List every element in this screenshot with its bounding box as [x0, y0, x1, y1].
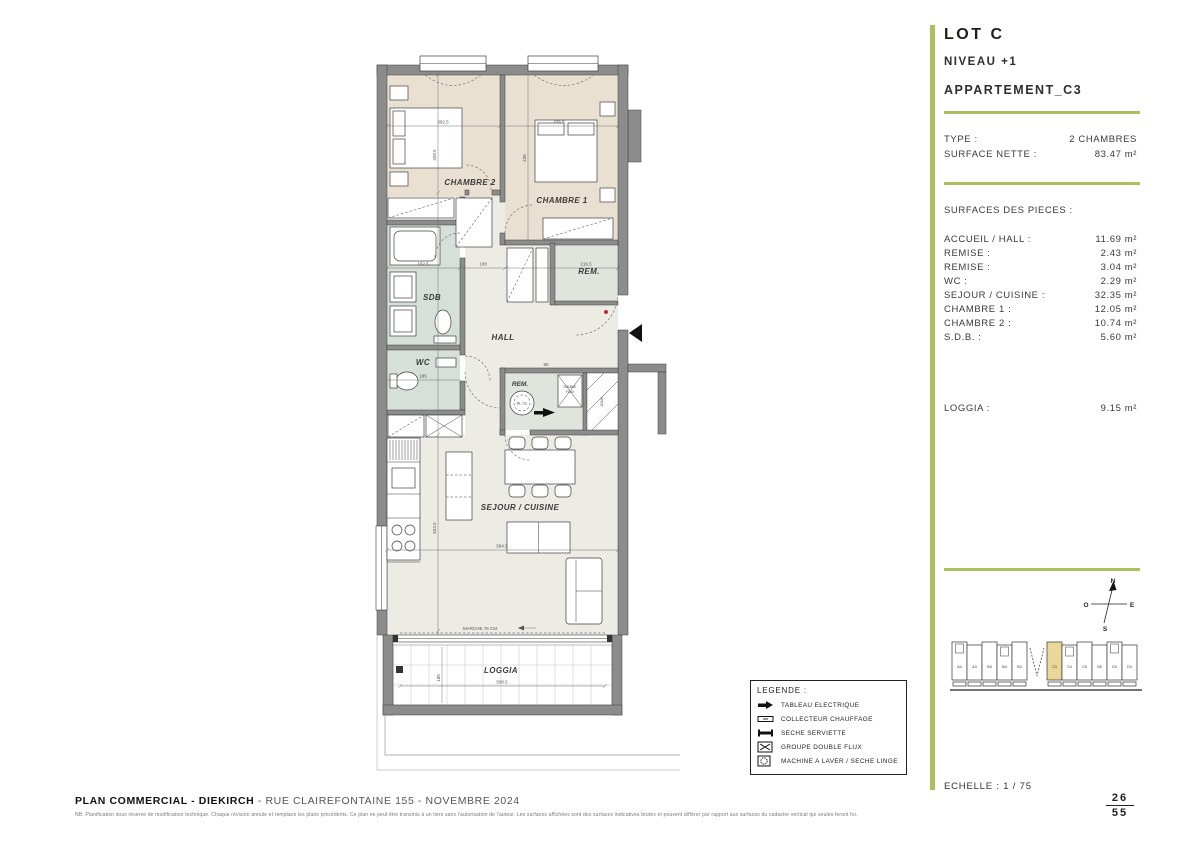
svg-text:216.5: 216.5 [580, 262, 592, 267]
plan-sheet: ML / SL DOUBLE FLUX 40/126 [0, 0, 1191, 842]
footer-title-rest: - RUE CLAIREFONTAINE 155 - NOVEMBRE 2024 [254, 795, 519, 807]
svg-text:D5: D5 [1097, 665, 1102, 669]
floorplan-drawing: ML / SL DOUBLE FLUX 40/126 [350, 50, 750, 790]
svg-text:C5: C5 [1082, 665, 1087, 669]
label-wc: WC [416, 358, 430, 367]
building-position-diagram: A4 A3 B5 B4 B3 C3 C4 C5 D5 D4 D3 [950, 628, 1142, 700]
level-title: NIVEAU +1 [944, 56, 1017, 68]
type-value: 2 CHAMBRES [1069, 134, 1137, 145]
surface-label: SURFACE NETTE : [944, 149, 1037, 160]
divider [944, 182, 1140, 185]
legend-item: TABLEAU ELECTRIQUE [757, 698, 900, 712]
surface-row: SURFACE NETTE : 83.47 m² [944, 149, 1137, 160]
legend-item: SECHE SERVIETTE [757, 726, 900, 740]
svg-text:D4: D4 [1112, 665, 1117, 669]
svg-text:553.5: 553.5 [432, 522, 437, 534]
footer-title-bold: PLAN COMMERCIAL - DIEKIRCH [75, 795, 254, 807]
svg-text:302.5: 302.5 [437, 120, 449, 125]
collecteur-chauffage-icon [757, 714, 781, 724]
svg-text:584.5: 584.5 [496, 544, 508, 549]
room-row: S.D.B. :5.60 m² [944, 332, 1137, 343]
loggia-row: LOGGIA : 9.15 m² [944, 403, 1137, 414]
room-row: REMISE :2.43 m² [944, 248, 1137, 259]
pieces-header: SURFACES DES PIECES : [944, 205, 1073, 216]
room-row: WC :2.29 m² [944, 276, 1137, 287]
shaft-label: 40/126 [600, 397, 604, 407]
machine-a-laver-icon [757, 755, 781, 767]
hall-closets [507, 248, 548, 302]
svg-text:B4: B4 [1002, 665, 1006, 669]
scale-label: ECHELLE : 1 / 75 [944, 781, 1032, 792]
room-row: SEJOUR / CUISINE :32.35 m² [944, 290, 1137, 301]
entrance-dot [604, 310, 608, 314]
highlighted-unit [1047, 642, 1062, 680]
svg-text:328.5: 328.5 [432, 149, 437, 161]
legend-item: MACHINE A LAVER / SECHE LINGE [757, 754, 900, 768]
entrance-marker [1030, 648, 1044, 676]
compass-o: O [1083, 602, 1088, 609]
room-row: ACCUEIL / HALL :11.69 m² [944, 234, 1137, 245]
svg-text:D3: D3 [1127, 665, 1132, 669]
legend-box: LEGENDE : TABLEAU ELECTRIQUE COLLECTEUR … [750, 680, 907, 775]
accent-bar [930, 25, 935, 790]
lot-title: LOT C [944, 26, 1005, 44]
compass-e: E [1130, 602, 1135, 609]
label-sejour: SEJOUR / CUISINE [481, 503, 560, 512]
apartment-title: APPARTEMENT_C3 [944, 83, 1082, 97]
double-flux-label: DOUBLE [563, 385, 576, 389]
label-loggia: LOGGIA [484, 666, 518, 675]
label-rem1: REM. [578, 267, 600, 276]
seche-serviette-icon [757, 728, 781, 738]
room-row: CHAMBRE 1 :12.05 m² [944, 304, 1137, 315]
surface-value: 83.47 m² [1095, 149, 1137, 160]
divider [944, 111, 1140, 114]
footer-title: PLAN COMMERCIAL - DIEKIRCH - RUE CLAIREF… [75, 795, 520, 807]
compass-n: N [1111, 578, 1116, 585]
label-chambre2: CHAMBRE 2 [444, 178, 495, 187]
svg-text:276.5: 276.5 [553, 120, 565, 125]
footer-disclaimer: NB: Planification sous réserve de modifi… [75, 812, 1145, 818]
tableau-electrique-icon [757, 700, 781, 710]
svg-text:508.5: 508.5 [496, 680, 508, 685]
type-label: TYPE : [944, 134, 978, 145]
label-hall: HALL [492, 333, 515, 342]
svg-text:436: 436 [522, 154, 527, 162]
groupe-double-flux-icon [757, 741, 781, 753]
label-chambre1: CHAMBRE 1 [536, 196, 587, 205]
compass-rose: N S O E [1082, 574, 1136, 632]
svg-text:B5: B5 [987, 665, 991, 669]
svg-text:C4: C4 [1067, 665, 1072, 669]
entrance-arrow-icon [629, 324, 642, 342]
svg-text:A4: A4 [957, 665, 961, 669]
ml-sl-label: ML / SL [517, 402, 528, 406]
tableau-electrique-symbol [534, 411, 543, 415]
room-row: CHAMBRE 2 :10.74 m² [944, 318, 1137, 329]
page-current: 26 [1106, 792, 1134, 806]
svg-text:185: 185 [419, 374, 427, 379]
divider [944, 568, 1140, 571]
svg-text:180: 180 [436, 674, 441, 682]
svg-text:FLUX: FLUX [566, 390, 575, 394]
svg-text:182.5: 182.5 [417, 262, 429, 267]
legend-title: LEGENDE : [757, 686, 900, 695]
room-row: REMISE :3.04 m² [944, 262, 1137, 273]
label-rem2: REM. [512, 381, 528, 388]
svg-text:B3: B3 [1017, 665, 1021, 669]
marche-label: MARCHE 76 CM [463, 626, 497, 631]
svg-text:95: 95 [543, 362, 549, 367]
legend-item: COLLECTEUR CHAUFFAGE [757, 712, 900, 726]
label-sdb: SDB [423, 293, 441, 302]
legend-item: GROUPE DOUBLE FLUX [757, 740, 900, 754]
svg-text:A3: A3 [972, 665, 976, 669]
type-row: TYPE : 2 CHAMBRES [944, 134, 1137, 145]
svg-text:108: 108 [479, 262, 487, 267]
svg-text:C3: C3 [1052, 665, 1057, 669]
